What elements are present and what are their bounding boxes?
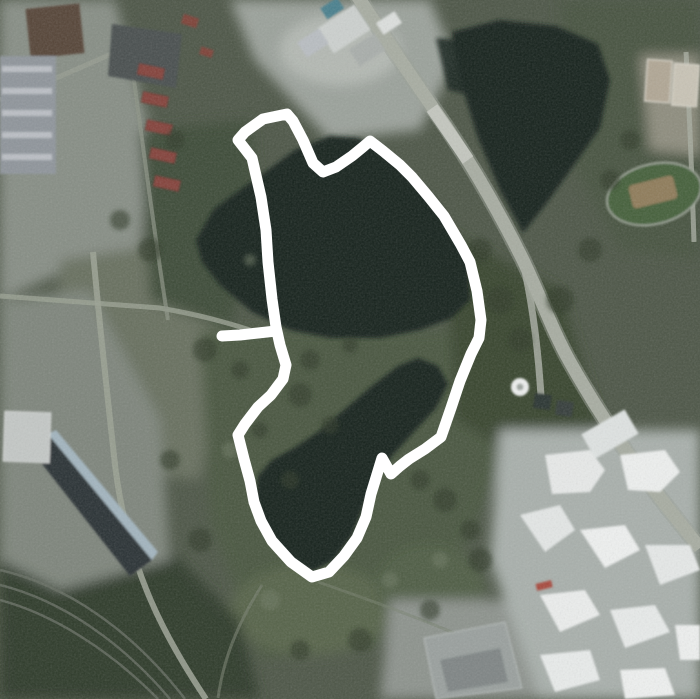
noise-texture [0, 0, 700, 699]
satellite-map-canvas[interactable] [0, 0, 700, 699]
map-viewport [0, 0, 700, 699]
route-spur-path [222, 331, 276, 336]
